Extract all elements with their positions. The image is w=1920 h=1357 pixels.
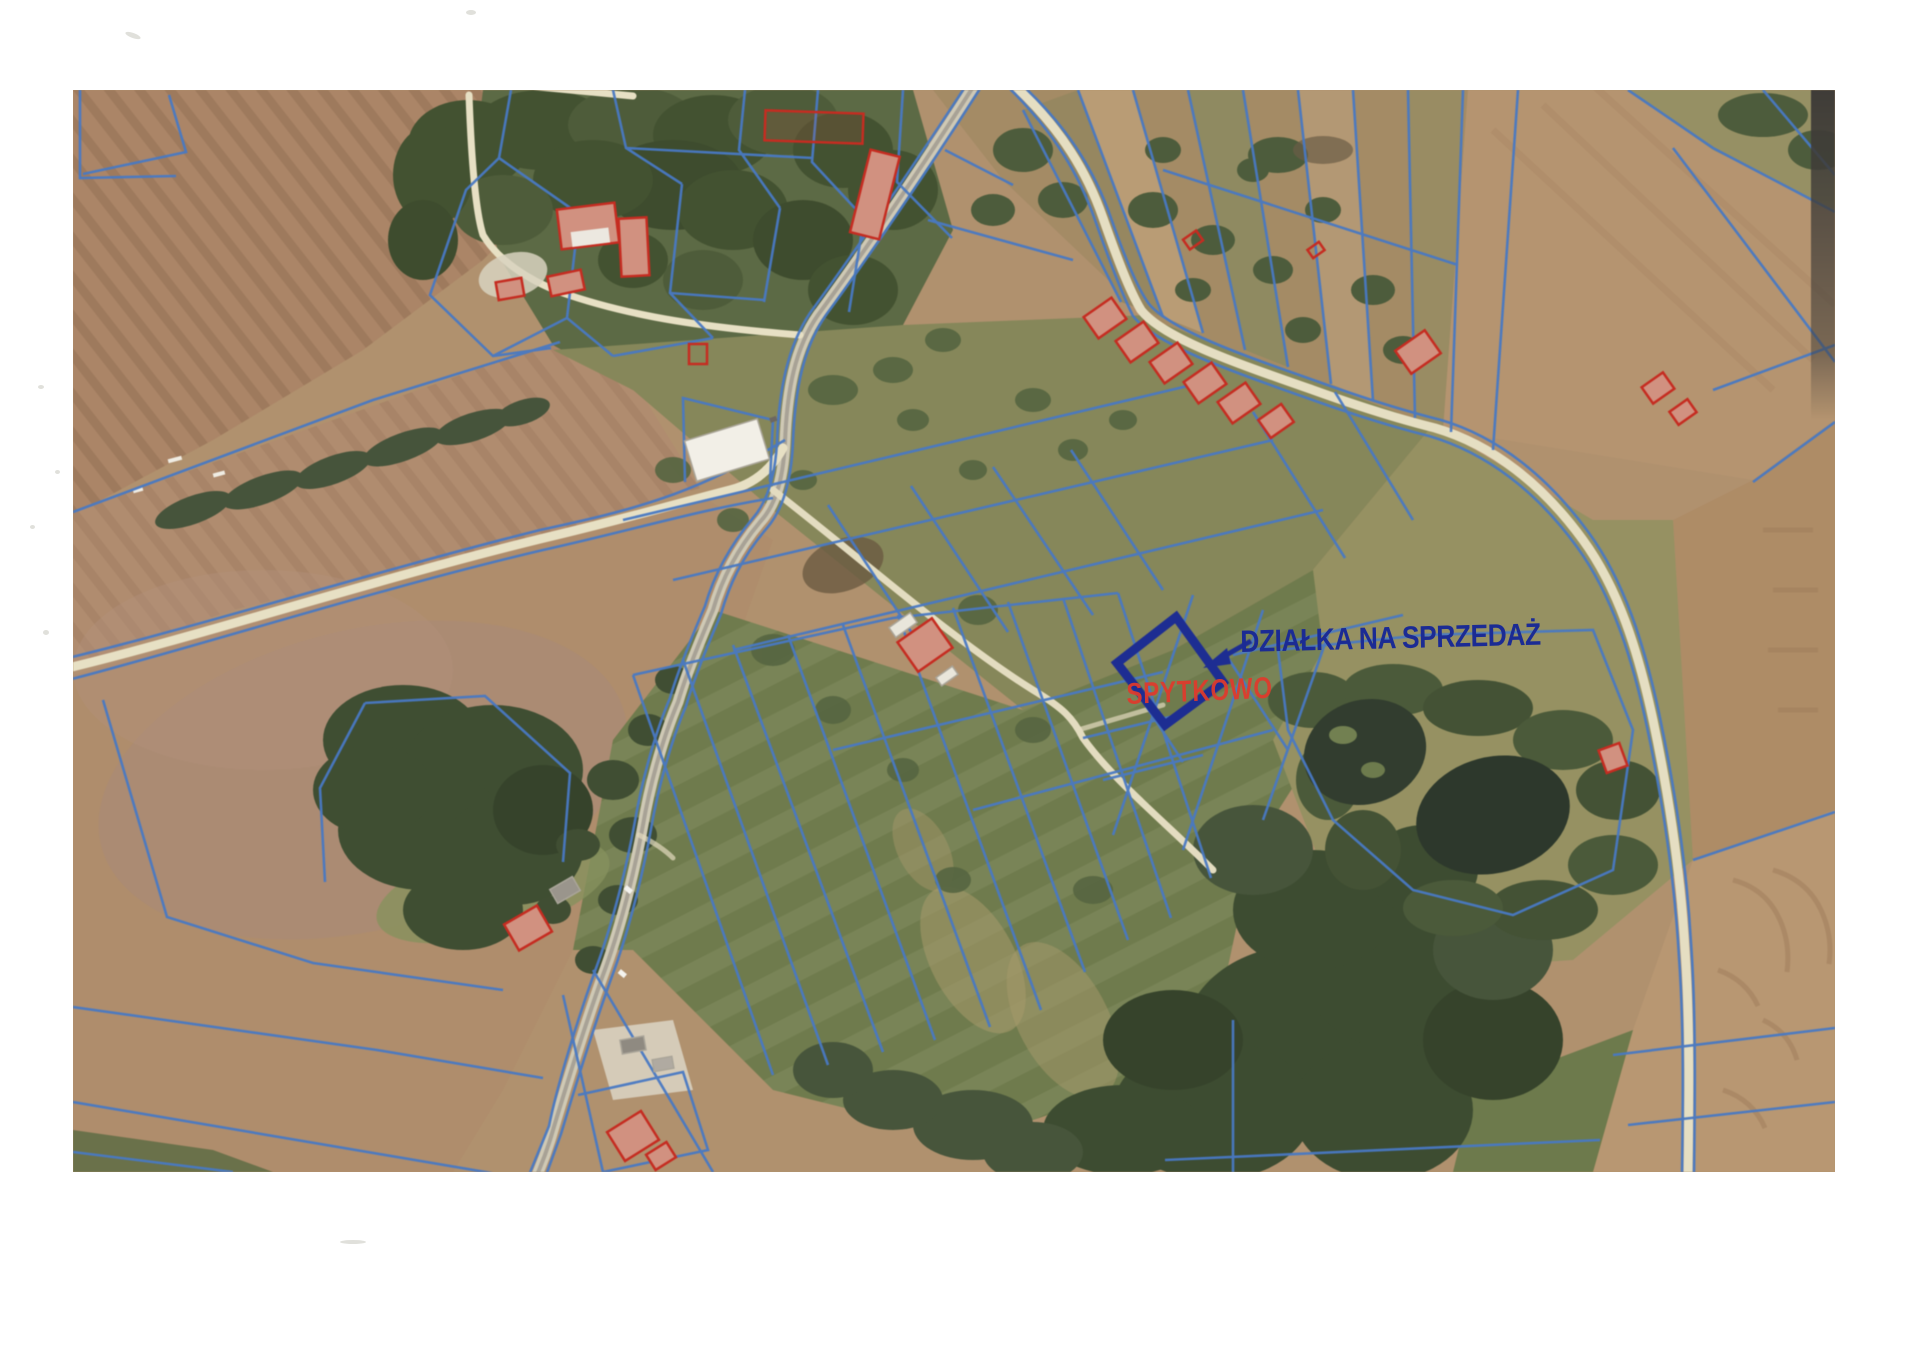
place-name-label: SPYTKOWO	[1126, 672, 1273, 712]
scan-speck	[38, 385, 44, 389]
scan-edge-artifact	[1811, 90, 1835, 420]
scan-speck	[466, 10, 476, 15]
aerial-photo-canvas	[73, 90, 1835, 1172]
for-sale-label: DZIAŁKA NA SPRZEDAŻ	[1240, 617, 1541, 660]
scan-speck	[30, 525, 35, 529]
scan-speck	[43, 630, 49, 635]
scan-speck	[340, 1240, 366, 1244]
aerial-photo: DZIAŁKA NA SPRZEDAŻ SPYTKOWO	[73, 90, 1835, 1172]
scanned-page: DZIAŁKA NA SPRZEDAŻ SPYTKOWO	[0, 0, 1920, 1357]
scan-speck	[55, 470, 60, 474]
scan-speck	[125, 30, 142, 40]
